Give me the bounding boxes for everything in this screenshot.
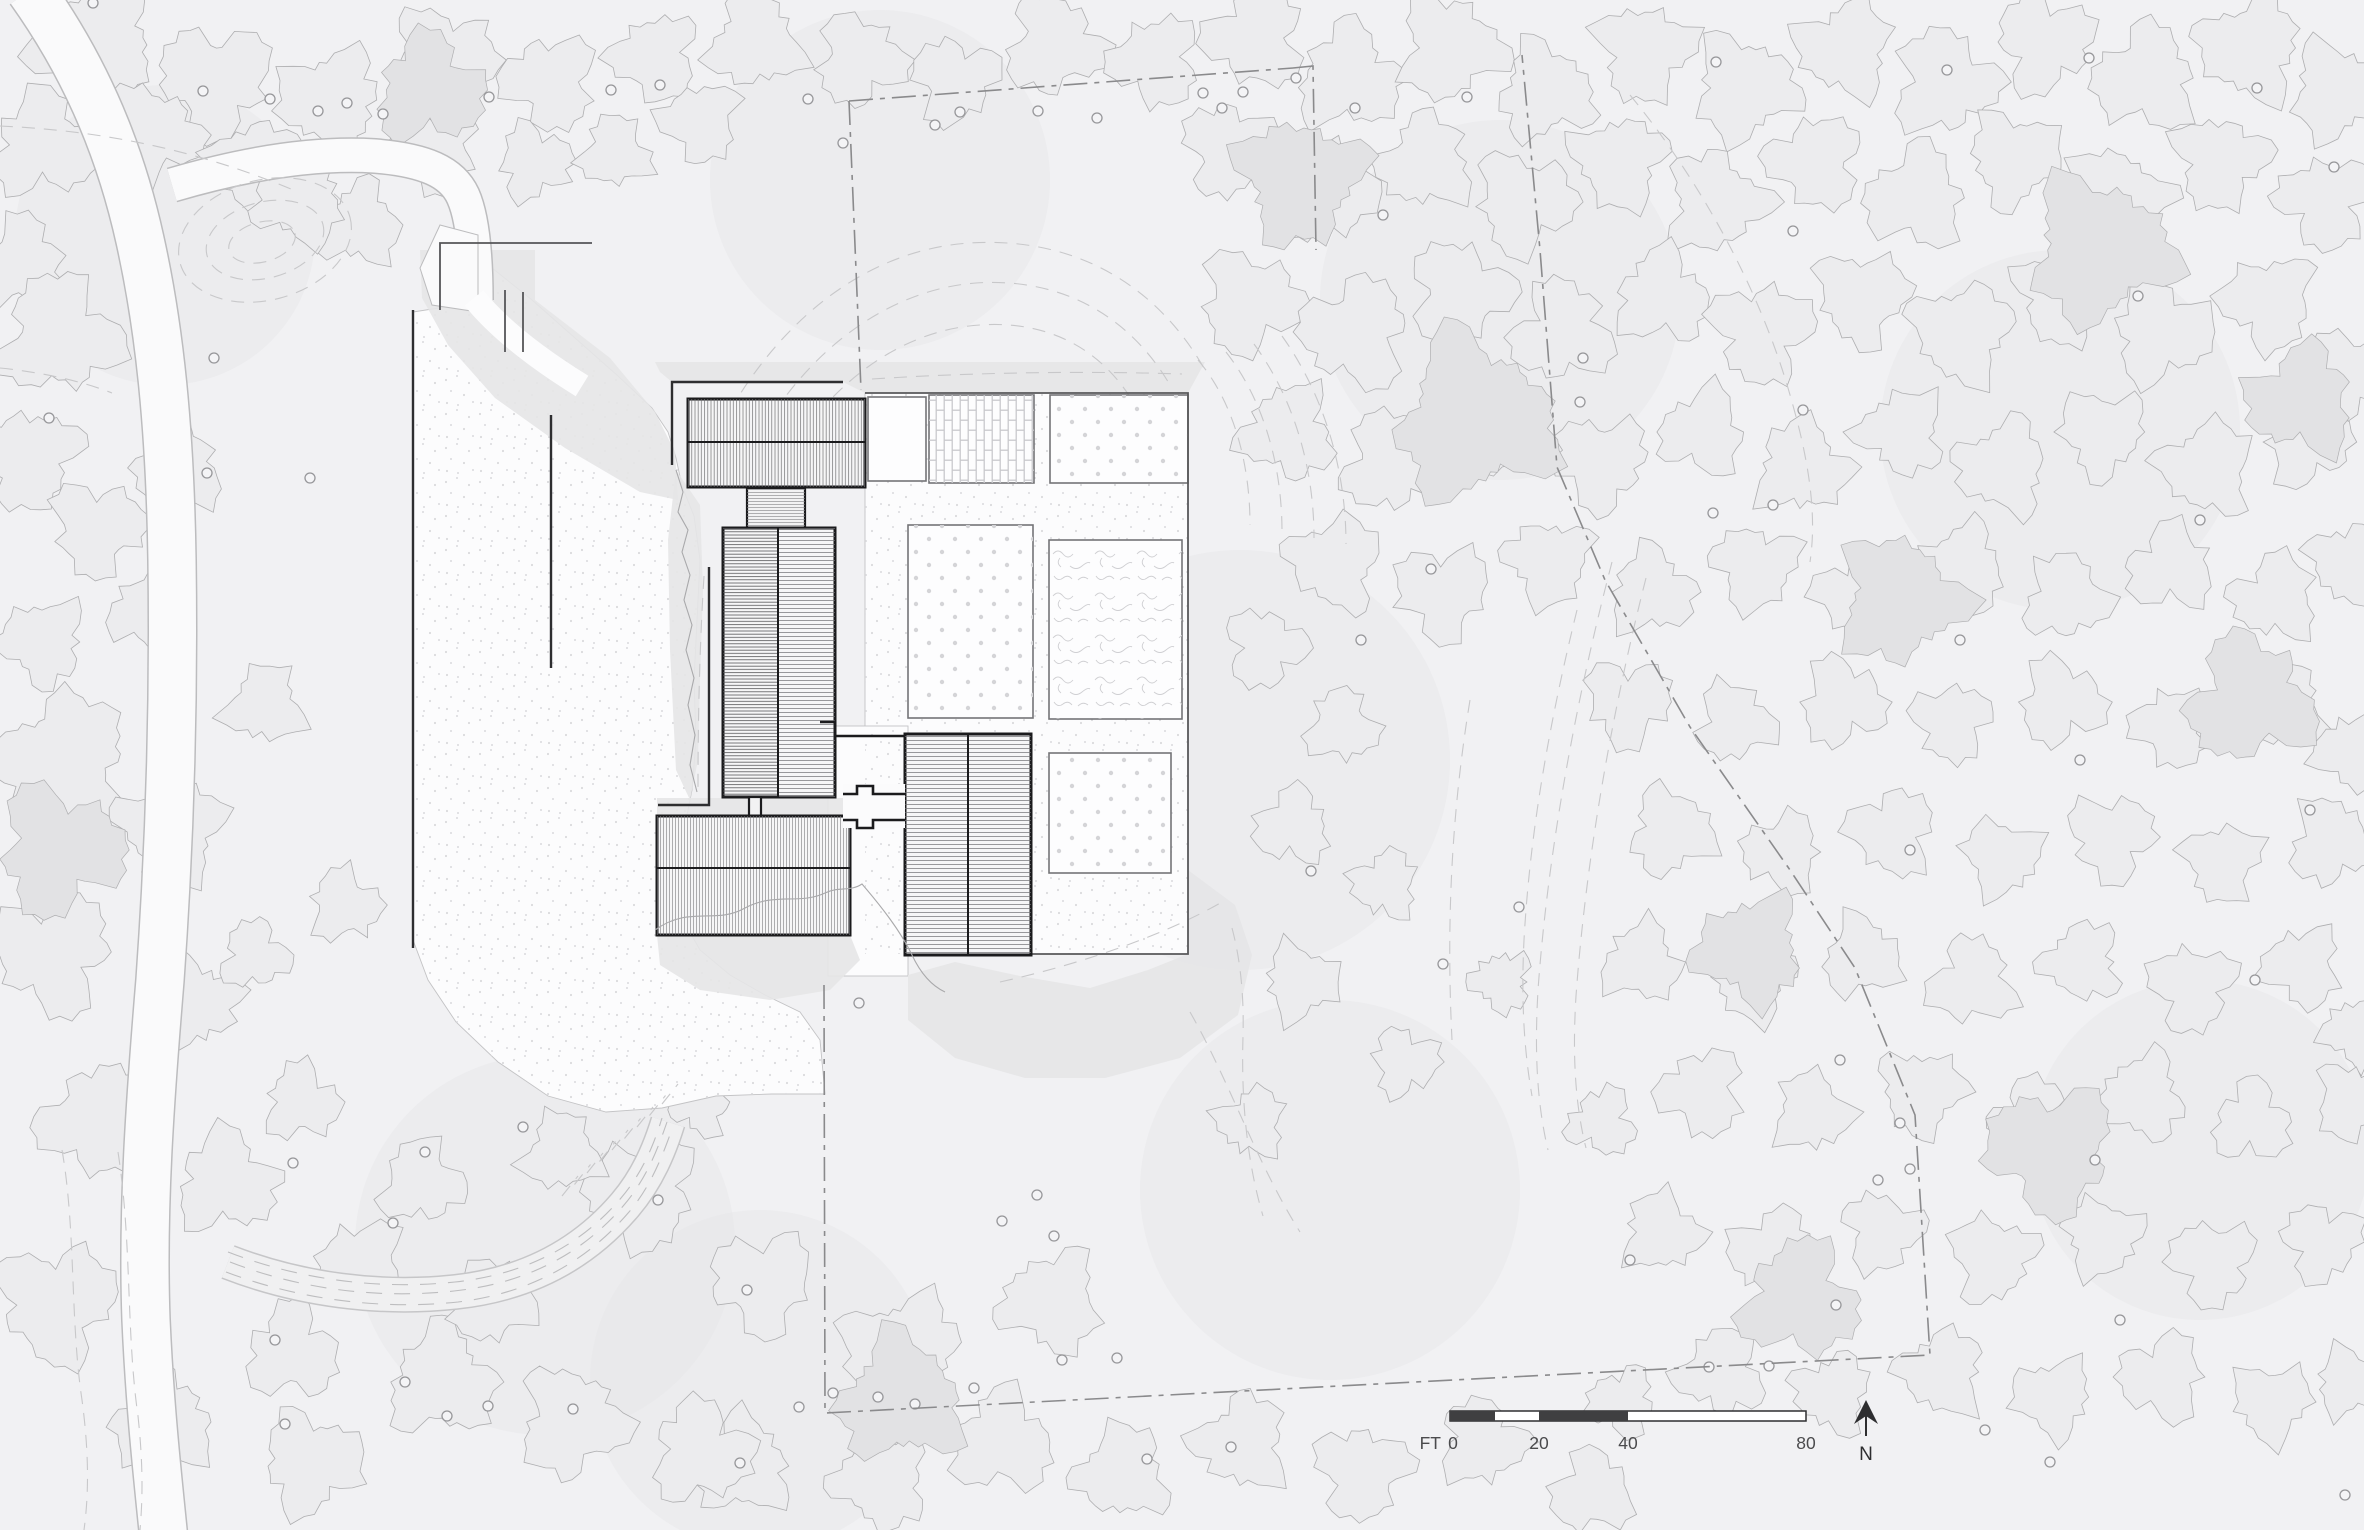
tree-trunk-marker bbox=[1291, 73, 1301, 83]
tree-trunk-marker bbox=[270, 1335, 280, 1345]
tree-trunk-marker bbox=[1226, 1442, 1236, 1452]
tree-trunk-marker bbox=[2305, 805, 2315, 815]
tree-trunk-marker bbox=[1238, 87, 1248, 97]
tree-trunk-marker bbox=[794, 1402, 804, 1412]
tree-trunk-marker bbox=[2250, 975, 2260, 985]
tree-trunk-marker bbox=[969, 1383, 979, 1393]
tree-trunk-marker bbox=[2329, 162, 2339, 172]
scale-unit-label: FT bbox=[1420, 1433, 1442, 1453]
tree-trunk-marker bbox=[1788, 226, 1798, 236]
tree-trunk-marker bbox=[655, 80, 665, 90]
garden-plot-dots-ne-texture bbox=[1050, 395, 1188, 483]
tree-trunk-marker bbox=[1575, 397, 1585, 407]
garden-plot-dots-south-texture bbox=[1049, 753, 1171, 873]
tree-trunk-marker bbox=[1378, 210, 1388, 220]
tree-trunk-marker bbox=[1356, 635, 1366, 645]
building-main-barn-roof-west bbox=[723, 528, 778, 797]
tree-trunk-marker bbox=[2075, 755, 2085, 765]
north-label: N bbox=[1859, 1444, 1873, 1465]
tree-trunk-marker bbox=[930, 120, 940, 130]
breezeway-south bbox=[749, 797, 761, 816]
terrain-shade bbox=[1140, 1000, 1520, 1380]
tree-trunk-marker bbox=[653, 1195, 663, 1205]
tree-trunk-marker bbox=[198, 86, 208, 96]
tree-trunk-marker bbox=[1711, 57, 1721, 67]
tree-trunk-marker bbox=[342, 98, 352, 108]
tree-trunk-marker bbox=[955, 107, 965, 117]
tree-trunk-marker bbox=[1835, 1055, 1845, 1065]
building-main-barn-roof-east bbox=[778, 528, 835, 797]
tree-trunk-marker bbox=[1092, 113, 1102, 123]
tree-trunk-marker bbox=[1350, 103, 1360, 113]
tree-trunk-marker bbox=[1708, 508, 1718, 518]
scale-tick-40: 40 bbox=[1618, 1433, 1638, 1453]
tree-trunk-marker bbox=[742, 1285, 752, 1295]
tree-trunk-marker bbox=[1831, 1300, 1841, 1310]
tree-trunk-marker bbox=[313, 106, 323, 116]
tree-trunk-marker bbox=[803, 94, 813, 104]
tree-trunk-marker bbox=[828, 1388, 838, 1398]
tree-trunk-marker bbox=[2195, 515, 2205, 525]
tree-trunk-marker bbox=[518, 1122, 528, 1132]
garden-plot-dots-center-texture bbox=[908, 525, 1033, 718]
tree-trunk-marker bbox=[606, 85, 616, 95]
tree-trunk-marker bbox=[1438, 959, 1448, 969]
tree-trunk-marker bbox=[400, 1377, 410, 1387]
scale-bar-segment-1 bbox=[1450, 1411, 1495, 1421]
tree-trunk-marker bbox=[1980, 1425, 1990, 1435]
tree-trunk-marker bbox=[735, 1458, 745, 1468]
tree-trunk-marker bbox=[1462, 92, 1472, 102]
tree-trunk-marker bbox=[2090, 1155, 2100, 1165]
tree-trunk-marker bbox=[44, 413, 54, 423]
tree-trunk-marker bbox=[1306, 866, 1316, 876]
tree-trunk-marker bbox=[873, 1392, 883, 1402]
tree-trunk-marker bbox=[838, 138, 848, 148]
tree-trunk-marker bbox=[88, 0, 98, 8]
tree-trunk-marker bbox=[1625, 1255, 1635, 1265]
tree-trunk-marker bbox=[1798, 405, 1808, 415]
tree-trunk-marker bbox=[305, 473, 315, 483]
tree-trunk-marker bbox=[1057, 1355, 1067, 1365]
scale-tick-0: 0 bbox=[1448, 1433, 1458, 1453]
tree-trunk-marker bbox=[1578, 353, 1588, 363]
tree-trunk-marker bbox=[2340, 1490, 2350, 1500]
tree-trunk-marker bbox=[202, 468, 212, 478]
tree-trunk-marker bbox=[1142, 1454, 1152, 1464]
tree-trunk-marker bbox=[2115, 1315, 2125, 1325]
tree-trunk-marker bbox=[420, 1147, 430, 1157]
tree-trunk-marker bbox=[1514, 902, 1524, 912]
garden-plot-blank bbox=[868, 397, 926, 481]
tree-trunk-marker bbox=[1873, 1175, 1883, 1185]
tree-trunk-marker bbox=[442, 1411, 452, 1421]
tree-trunk-marker bbox=[2133, 291, 2143, 301]
tree-trunk-marker bbox=[280, 1419, 290, 1429]
tree-trunk-marker bbox=[854, 998, 864, 1008]
tree-trunk-marker bbox=[1426, 564, 1436, 574]
tree-trunk-marker bbox=[1895, 1118, 1905, 1128]
scale-tick-80: 80 bbox=[1796, 1433, 1816, 1453]
tree-trunk-marker bbox=[1217, 103, 1227, 113]
tree-trunk-marker bbox=[378, 109, 388, 119]
tree-trunk-marker bbox=[2045, 1457, 2055, 1467]
breezeway-north-hatch bbox=[747, 488, 805, 528]
tree-trunk-marker bbox=[1905, 1164, 1915, 1174]
tree-trunk-marker bbox=[1942, 65, 1952, 75]
tree-trunk-marker bbox=[1049, 1231, 1059, 1241]
tree-trunk-marker bbox=[1768, 500, 1778, 510]
garden-plot-brick-texture bbox=[929, 395, 1034, 483]
tree-trunk-marker bbox=[997, 1216, 1007, 1226]
tree-trunk-marker bbox=[388, 1218, 398, 1228]
tree-trunk-marker bbox=[568, 1404, 578, 1414]
tree-trunk-marker bbox=[1955, 635, 1965, 645]
tree-trunk-marker bbox=[2252, 83, 2262, 93]
tree-trunk-marker bbox=[483, 1401, 493, 1411]
tree-trunk-marker bbox=[1905, 845, 1915, 855]
tree-trunk-marker bbox=[288, 1158, 298, 1168]
garden-plot-squiggle-texture bbox=[1049, 540, 1182, 719]
tree-trunk-marker bbox=[484, 92, 494, 102]
tree-trunk-marker bbox=[209, 353, 219, 363]
scale-tick-20: 20 bbox=[1529, 1433, 1549, 1453]
site-plan-canvas: FT 0 20 40 80 N bbox=[0, 0, 2364, 1530]
tree-trunk-marker bbox=[2084, 53, 2094, 63]
tree-trunk-marker bbox=[1198, 88, 1208, 98]
tree-trunk-marker bbox=[1032, 1190, 1042, 1200]
scale-bar-segment-2 bbox=[1539, 1411, 1628, 1421]
tree-trunk-marker bbox=[1033, 106, 1043, 116]
tree-trunk-marker bbox=[265, 94, 275, 104]
tree-trunk-marker bbox=[1112, 1353, 1122, 1363]
